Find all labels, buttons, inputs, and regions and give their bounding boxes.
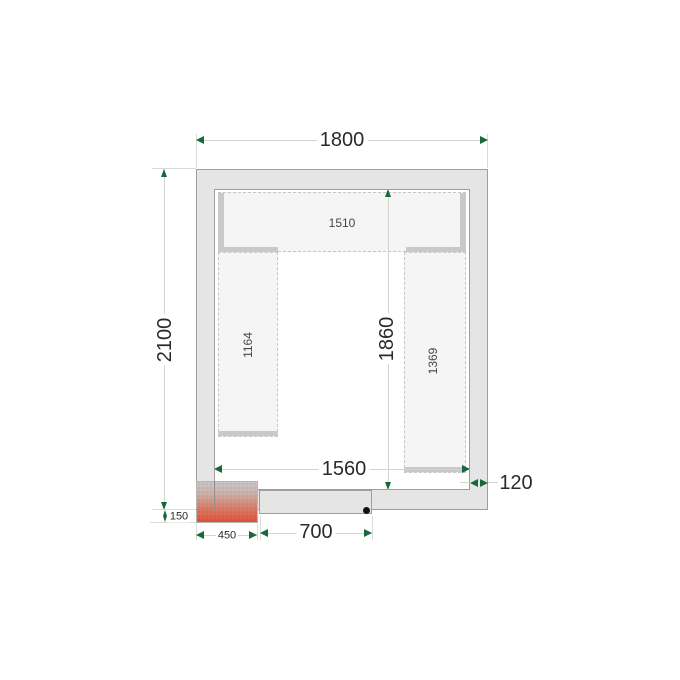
cold-room-plan: 1510 1164 1369 1800 2100 1860 1560 120 1… bbox=[0, 0, 680, 680]
door-handle-dot bbox=[363, 507, 370, 514]
dim-arrow-700-left bbox=[260, 529, 268, 537]
dim-arrow-120-left bbox=[470, 479, 478, 487]
dim-arrow-700-right bbox=[364, 529, 372, 537]
wall-corner-line-vertical bbox=[214, 481, 215, 510]
dim-arrow-1860-top bbox=[385, 189, 391, 197]
dim-arrow-1800-right bbox=[480, 136, 488, 144]
shelf-top-length-label: 1510 bbox=[329, 217, 356, 229]
dim-arrow-1560-left bbox=[214, 465, 222, 473]
dim-label-unit-height: 150 bbox=[168, 512, 190, 523]
dim-arrow-450-right bbox=[249, 531, 257, 539]
dim-label-outer-width: 1800 bbox=[317, 129, 368, 151]
shelf-bar-top-right-vertical bbox=[460, 193, 466, 251]
dim-arrow-1560-right bbox=[462, 465, 470, 473]
dim-label-unit-width: 450 bbox=[216, 531, 238, 542]
dim-arrow-2100-top bbox=[161, 169, 167, 177]
dim-arrow-150-bottom bbox=[163, 516, 167, 522]
dim-arrow-1800-left bbox=[196, 136, 204, 144]
shelf-bar-left-bottom bbox=[218, 431, 278, 436]
dim-arrow-450-left bbox=[196, 531, 204, 539]
shelf-bar-top-left-horizontal bbox=[218, 247, 278, 252]
wall-corner-line-horizontal bbox=[196, 509, 215, 510]
dim-arrow-1860-bottom bbox=[385, 482, 391, 490]
shelf-bar-top-left-vertical bbox=[218, 193, 224, 251]
ext-line-2100-top bbox=[152, 168, 196, 169]
dim-label-inner-height: 1860 bbox=[376, 314, 398, 365]
shelf-right-length-label: 1369 bbox=[427, 348, 439, 375]
dim-label-door-width: 700 bbox=[296, 521, 335, 543]
dim-label-inner-width: 1560 bbox=[319, 458, 370, 480]
door-panel bbox=[259, 490, 372, 514]
dim-line-120-left bbox=[460, 482, 470, 483]
shelf-left-length-label: 1164 bbox=[242, 332, 254, 358]
cooling-unit-block bbox=[196, 481, 258, 523]
ext-line-700-right bbox=[372, 516, 373, 540]
dim-label-wall-thickness: 120 bbox=[496, 472, 535, 494]
dim-arrow-120-right bbox=[480, 479, 488, 487]
shelf-bar-top-right-horizontal bbox=[406, 247, 466, 252]
ext-line-450-right bbox=[257, 524, 258, 540]
dim-label-outer-height: 2100 bbox=[154, 315, 176, 366]
